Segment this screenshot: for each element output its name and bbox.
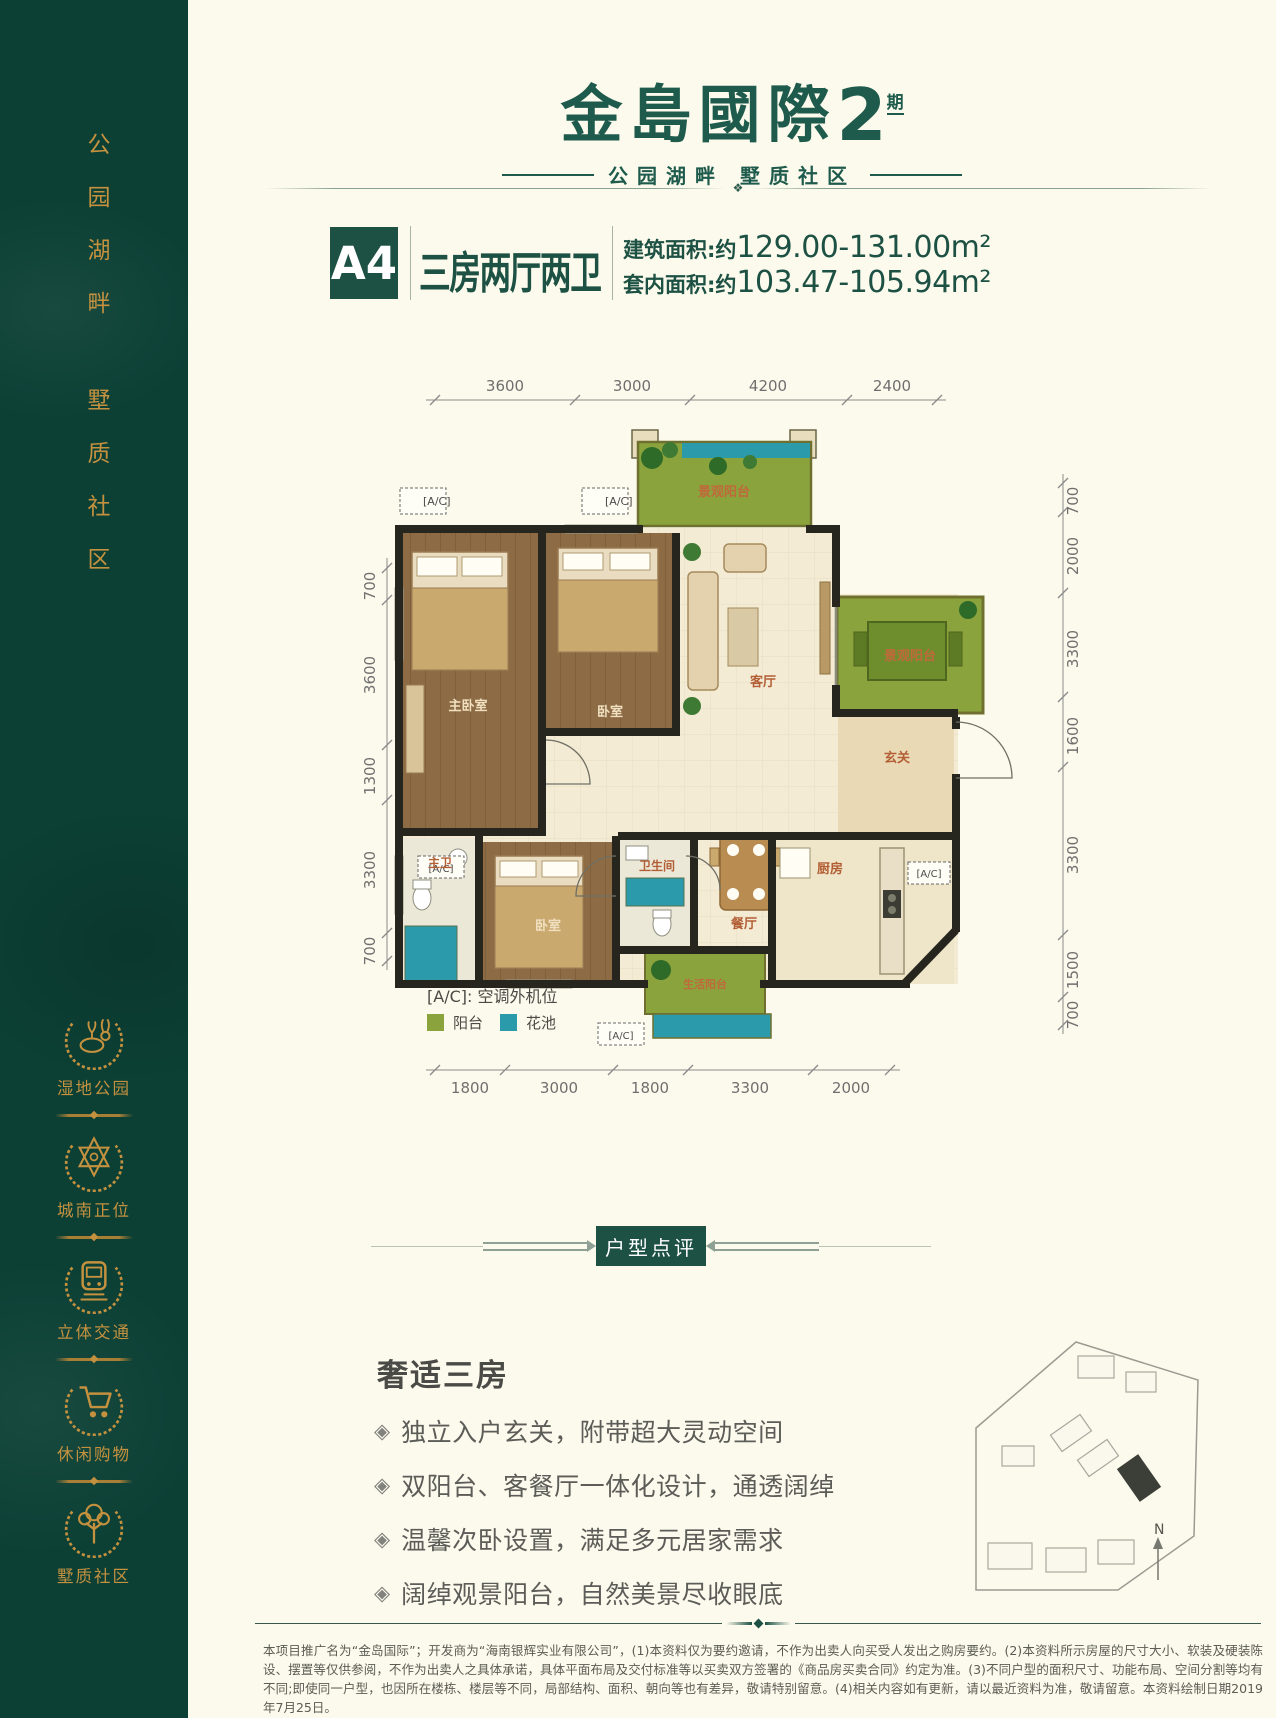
svg-text:700: 700 (361, 572, 379, 601)
fridge (780, 848, 810, 878)
ac-label: [A/C] (423, 495, 451, 508)
svg-text:2000: 2000 (832, 1079, 870, 1097)
diamond-bullet-icon: ◈ (374, 1529, 390, 1550)
badge-label: 立体交通 (57, 1319, 131, 1343)
divider-rule (371, 1246, 483, 1247)
coffee-table (728, 608, 758, 666)
ac-label: [A/C] (605, 495, 633, 508)
unit-layout-title: 三房两厅两卫 (419, 237, 600, 301)
wardrobe (406, 685, 424, 773)
room-label-service-balcony: 生活阳台 (683, 977, 727, 991)
sidebar-slogan-bottom: 墅质社区 (84, 388, 107, 600)
review-list: ◈ 独立入户玄关，附带超大灵动空间 ◈ 双阳台、客餐厅一体化设计，通透阔绰 ◈ … (374, 1413, 835, 1629)
room-label-terrace: 景观阳台 (884, 648, 936, 664)
svg-text:700: 700 (1064, 1001, 1082, 1030)
svg-text:3300: 3300 (1064, 836, 1082, 874)
svg-text:3000: 3000 (540, 1079, 578, 1097)
highlighted-building (1117, 1454, 1161, 1502)
divider-rule (795, 1623, 1262, 1624)
diamond-bullet-icon: ◈ (374, 1475, 390, 1496)
cart-icon (61, 1374, 127, 1436)
badge-label: 湿地公园 (57, 1075, 131, 1099)
svg-text:3000: 3000 (613, 377, 651, 395)
legend-pond: 花池 (526, 1014, 556, 1032)
room-foyer (838, 717, 954, 832)
footer-disclaimer: 本项目推广名为“金岛国际”；开发商为“海南银辉实业有限公司”，(1)本资料仅为要… (263, 1641, 1263, 1717)
tagline-rule-right (870, 174, 962, 176)
badge-divider (55, 1236, 133, 1239)
divider-rail (715, 1242, 819, 1251)
north-label: N (1154, 1522, 1164, 1538)
badge-transit: 立体交通 (57, 1252, 131, 1343)
review-heading: 奢适三房 (377, 1350, 509, 1395)
svg-text:1800: 1800 (631, 1079, 669, 1097)
svg-text:1800: 1800 (451, 1079, 489, 1097)
sidebar-slogan-top: 公园湖畔 (84, 132, 107, 344)
room-label-bed2: 卧室 (597, 704, 623, 720)
flyer-page: 公园湖畔 墅质社区 湿地公园 (0, 0, 1276, 1718)
divider-arrow-icon (587, 1240, 596, 1252)
gross-area-value: 129.00-131.00m² (736, 230, 991, 265)
diamond-bullet-icon: ◈ (374, 1421, 390, 1442)
svg-text:700: 700 (1064, 487, 1082, 516)
plant (683, 697, 701, 715)
svg-text:1500: 1500 (1064, 951, 1082, 989)
logo-phase-number: 2 (836, 84, 886, 147)
svg-text:1600: 1600 (1064, 717, 1082, 755)
review-text: 阔绰观景阳台，自然美景尽收眼底 (401, 1575, 784, 1611)
bed-2 (558, 548, 658, 652)
north-arrow: N (1153, 1522, 1164, 1580)
legend-balcony: 阳台 (453, 1014, 483, 1032)
entry-door (956, 722, 1012, 778)
svg-text:3300: 3300 (1064, 630, 1082, 668)
divider-ornament-icon: ❖ (733, 182, 744, 194)
svg-text:2400: 2400 (873, 377, 911, 395)
deer-icon (61, 1008, 127, 1070)
flower-pond (682, 443, 810, 458)
net-area-label: 套内面积:约 (623, 269, 736, 299)
review-text: 独立入户玄关，附带超大灵动空间 (401, 1413, 784, 1449)
diamond-bullet-icon: ◈ (374, 1583, 390, 1604)
room-label-bed3: 卧室 (535, 918, 561, 934)
svg-text:2000: 2000 (1064, 537, 1082, 575)
badge-label: 城南正位 (57, 1197, 131, 1221)
title-divider (410, 226, 411, 300)
net-area-value: 103.47-105.94m² (736, 265, 991, 300)
flower-pond (653, 1014, 771, 1038)
divider-rule (265, 188, 725, 189)
bed-master (412, 552, 508, 670)
room-label-balcony-top: 景观阳台 (698, 484, 750, 500)
sidebar-badges: 湿地公园 城南正位 (0, 1008, 188, 1587)
unit-badge: A4 (330, 227, 398, 299)
svg-text:3600: 3600 (486, 377, 524, 395)
compass-star-icon (61, 1130, 127, 1192)
review-divider-label: 户型点评 (596, 1226, 706, 1266)
badge-divider (55, 1480, 133, 1483)
review-item: ◈ 阔绰观景阳台，自然美景尽收眼底 (374, 1575, 835, 1611)
flower-pond (405, 926, 457, 981)
room-label-kitchen: 厨房 (817, 861, 843, 877)
footer-divider (255, 1620, 1261, 1627)
area-info: 建筑面积:约 129.00-131.00m² 套内面积:约 103.47-105… (623, 230, 991, 300)
review-item: ◈ 温馨次卧设置，满足多元居家需求 (374, 1521, 835, 1557)
tagline-rule-left (502, 174, 594, 176)
floor-plan: [A/C] [A/C] [A/C] [A/C] [A/C] 景观阳台 客厅 景观… (320, 370, 1130, 1115)
flower-pond (626, 878, 684, 906)
divider-rail (483, 1242, 587, 1251)
plant (683, 543, 701, 561)
svg-text:700: 700 (361, 937, 379, 966)
divider-ornament-icon (726, 1620, 791, 1627)
floor-plan-rooms: [A/C] [A/C] [A/C] [A/C] [A/C] 景观阳台 客厅 景观… (395, 430, 1012, 1045)
plan-legend: [A/C]: 空调外机位 阳台 花池 (427, 987, 557, 1032)
badge-label: 墅质社区 (57, 1563, 131, 1587)
room-label-foyer: 玄关 (884, 750, 910, 766)
room-label-dining: 餐厅 (730, 916, 757, 932)
divider-rule (255, 1623, 722, 1624)
ac-label: [A/C] (917, 869, 942, 880)
sidebar: 公园湖畔 墅质社区 湿地公园 (0, 0, 188, 1718)
badge-city-south: 城南正位 (57, 1130, 131, 1221)
svg-text:3300: 3300 (361, 851, 379, 889)
train-icon (61, 1252, 127, 1314)
ac-label: [A/C] (609, 1031, 634, 1042)
tree-icon (61, 1496, 127, 1558)
room-label-bath: 卫生间 (639, 858, 675, 873)
svg-text:3600: 3600 (361, 656, 379, 694)
header: 金島國際 2 期 公园湖畔 墅质社区 (188, 84, 1276, 189)
svg-text:4200: 4200 (749, 377, 787, 395)
review-item: ◈ 独立入户玄关，附带超大灵动空间 (374, 1413, 835, 1449)
review-item: ◈ 双阳台、客餐厅一体化设计，通透阔绰 (374, 1467, 835, 1503)
tv-cabinet (820, 582, 830, 674)
badge-villa-community: 墅质社区 (57, 1496, 131, 1587)
review-text: 温馨次卧设置，满足多元居家需求 (401, 1521, 784, 1557)
divider-rule (751, 188, 1211, 189)
bed-3 (495, 856, 583, 968)
room-label-living: 客厅 (750, 674, 776, 690)
header-divider: ❖ (265, 182, 1211, 194)
divider-arrow-icon (706, 1240, 715, 1252)
gross-area-label: 建筑面积:约 (623, 234, 736, 264)
logo-text: 金島國際 (560, 84, 836, 146)
logo-phase-char: 期 (887, 88, 904, 115)
legend-balcony-swatch (427, 1014, 444, 1031)
review-divider: 户型点评 (368, 1224, 934, 1268)
legend-pond-swatch (500, 1014, 517, 1031)
review-text: 双阳台、客餐厅一体化设计，通透阔绰 (401, 1467, 835, 1503)
room-label-master-bath: 主卫 (428, 855, 452, 870)
badge-divider (55, 1114, 133, 1117)
badge-shopping: 休闲购物 (57, 1374, 131, 1465)
svg-text:1300: 1300 (361, 757, 379, 795)
badge-divider (55, 1358, 133, 1361)
legend-ac: [A/C]: 空调外机位 (427, 987, 557, 1006)
site-plan: N (958, 1328, 1208, 1598)
svg-text:3300: 3300 (731, 1079, 769, 1097)
title-divider (612, 226, 613, 300)
divider-rule (819, 1246, 931, 1247)
badge-wetland-park: 湿地公园 (57, 1008, 131, 1099)
room-label-master: 主卧室 (448, 698, 487, 714)
badge-label: 休闲购物 (57, 1441, 131, 1465)
